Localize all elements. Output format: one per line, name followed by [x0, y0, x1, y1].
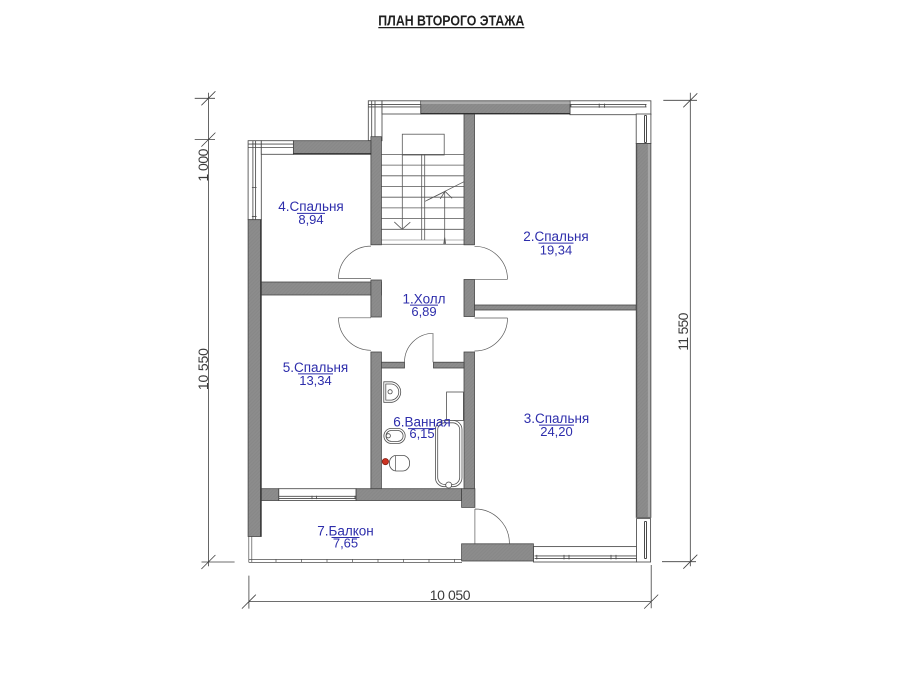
- svg-text:10 550: 10 550: [195, 348, 211, 390]
- svg-text:6,89: 6,89: [411, 304, 436, 319]
- svg-text:11 550: 11 550: [675, 312, 691, 350]
- svg-text:6,15: 6,15: [409, 426, 434, 441]
- svg-text:13,34: 13,34: [299, 373, 332, 388]
- svg-text:1 000: 1 000: [195, 148, 211, 181]
- svg-text:19,34: 19,34: [540, 242, 573, 257]
- svg-text:8,94: 8,94: [298, 212, 323, 227]
- svg-text:10 050: 10 050: [430, 587, 471, 603]
- svg-text:24,20: 24,20: [540, 424, 573, 439]
